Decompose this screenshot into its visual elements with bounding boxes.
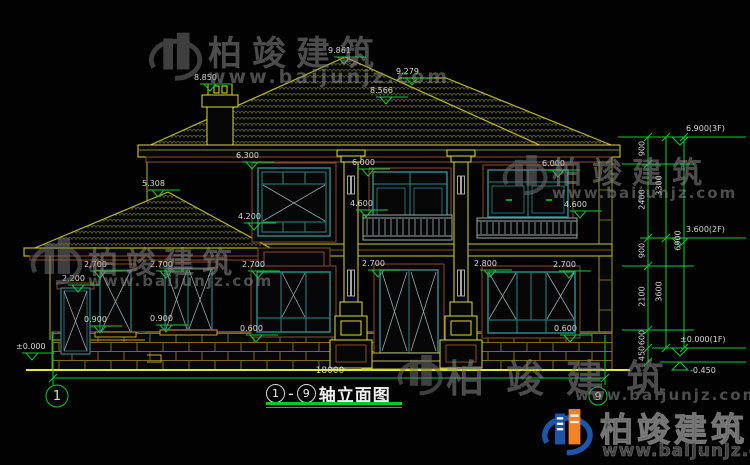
window-1f-right [482,266,580,338]
watermark-url-text: www.baijunjz.com [208,66,450,88]
window-2f-left [252,163,336,242]
cad-elevation-screenshot: 9.861 9.279 8.566 8.850 5.308 6.300 6.00… [0,0,750,465]
watermark-url-text: www.baijunjz.com [88,272,273,290]
watermark-logo-icon [24,228,84,288]
brand-logo-url: www.baijunjz.com [602,441,750,461]
watermark-logo-icon [497,146,549,198]
annex-door [57,283,94,354]
chimney [202,84,238,147]
brand-logo-icon [536,400,594,458]
watermark-logo-icon [392,346,444,398]
balcony-railing-left [363,215,452,240]
axis-bubble-left [46,385,68,407]
main-entrance-door [374,264,444,353]
watermark-url-text: www.baijunjz.com [552,184,737,202]
watermark-url-text: www.baijunjz.com [575,386,750,404]
watermark-logo-icon [142,22,204,84]
balcony-railing-right [477,218,577,238]
